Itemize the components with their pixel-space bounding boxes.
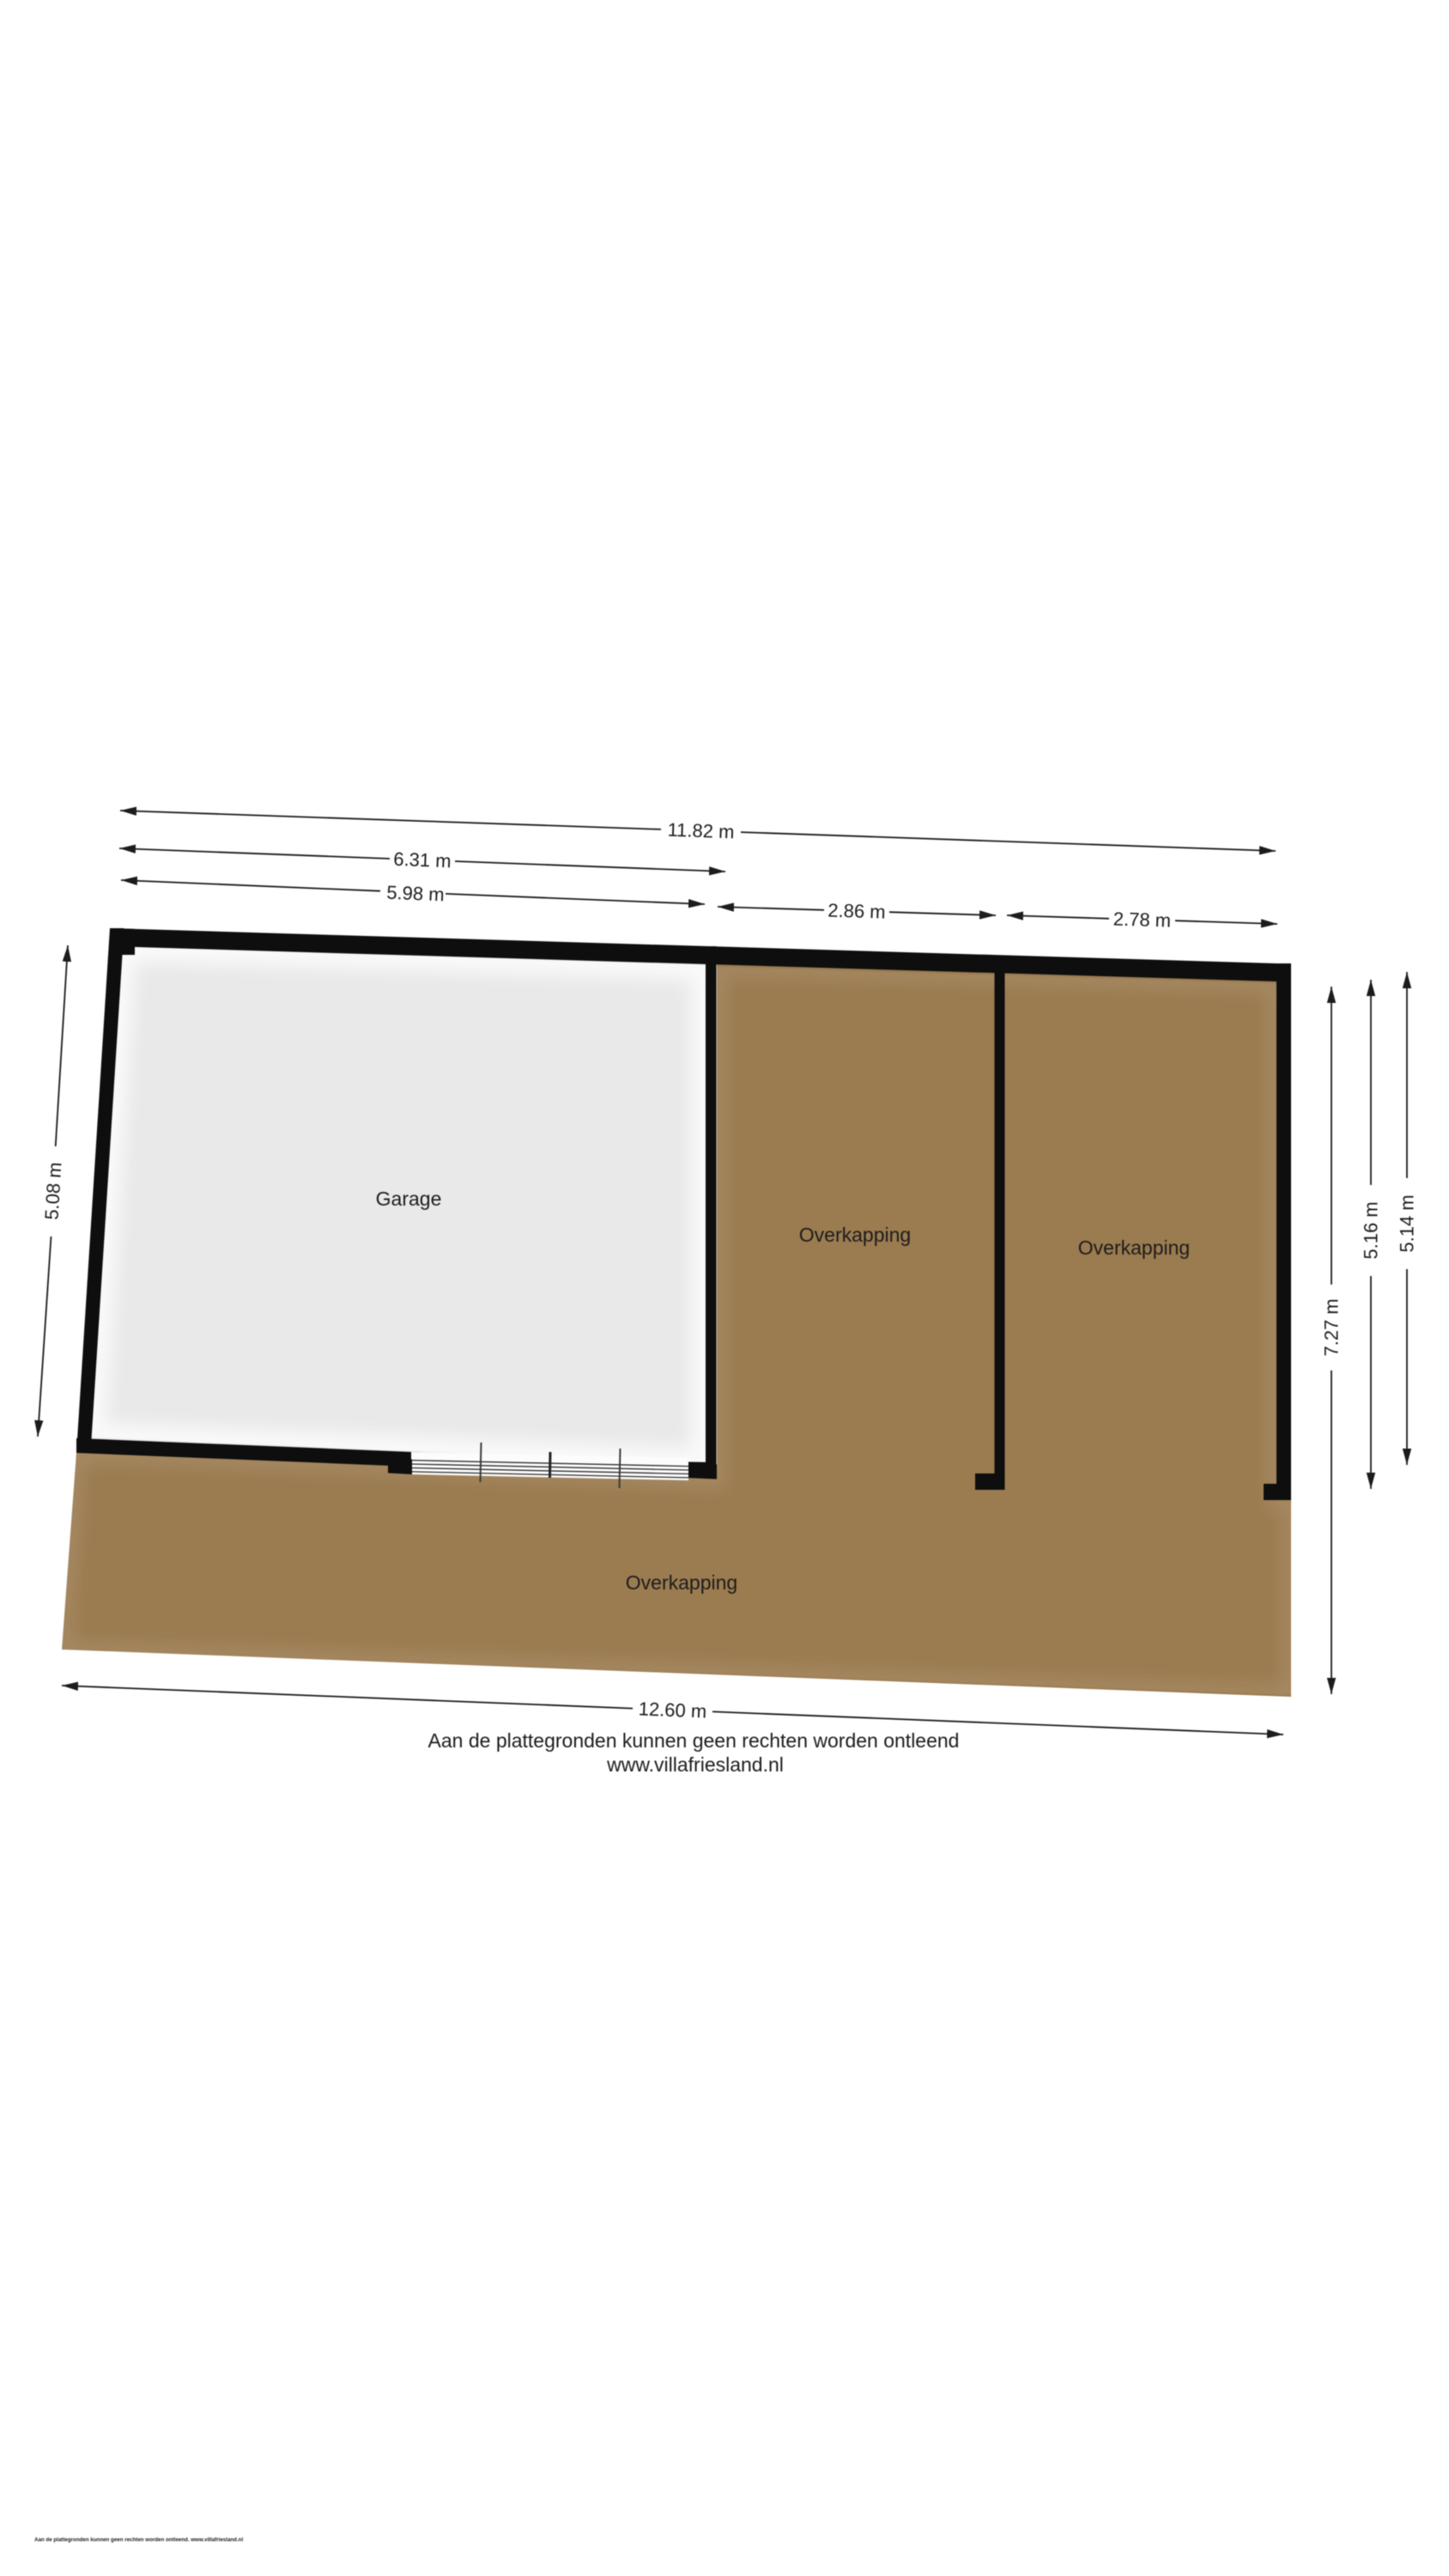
svg-text:Aan de plattegronden kunnen ge: Aan de plattegronden kunnen geen rechten…: [428, 1729, 960, 1752]
svg-text:2.78 m: 2.78 m: [1113, 908, 1171, 931]
svg-text:12.60 m: 12.60 m: [638, 1698, 706, 1722]
svg-text:Overkapping: Overkapping: [1078, 1236, 1190, 1259]
svg-text:Overkapping: Overkapping: [626, 1571, 737, 1594]
svg-text:Aan de plattegronden kunnen ge: Aan de plattegronden kunnen geen rechten…: [34, 2537, 243, 2543]
svg-text:Garage: Garage: [376, 1188, 442, 1210]
svg-text:11.82 m: 11.82 m: [667, 819, 735, 843]
svg-text:5.98 m: 5.98 m: [386, 882, 445, 906]
svg-text:Overkapping: Overkapping: [799, 1224, 911, 1246]
svg-text:6.31 m: 6.31 m: [393, 848, 452, 872]
svg-text:2.86 m: 2.86 m: [828, 899, 886, 922]
svg-text:5.08 m: 5.08 m: [40, 1162, 65, 1221]
svg-text:5.14 m: 5.14 m: [1397, 1194, 1418, 1252]
svg-text:7.27 m: 7.27 m: [1321, 1298, 1343, 1356]
svg-text:www.villafriesland.nl: www.villafriesland.nl: [606, 1753, 784, 1776]
svg-text:5.16 m: 5.16 m: [1361, 1201, 1382, 1259]
